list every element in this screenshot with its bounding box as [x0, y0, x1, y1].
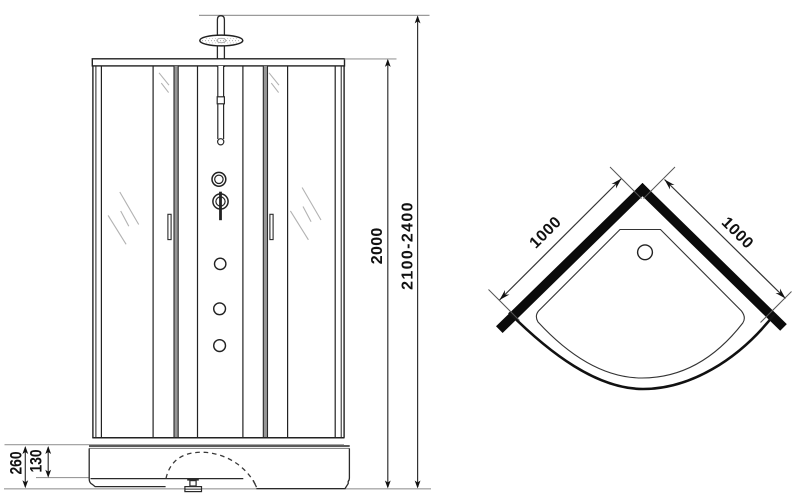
- svg-text:130: 130: [27, 449, 45, 472]
- svg-text:260: 260: [7, 451, 25, 474]
- svg-text:2100-2400: 2100-2400: [400, 201, 417, 290]
- svg-text:2000: 2000: [369, 227, 386, 264]
